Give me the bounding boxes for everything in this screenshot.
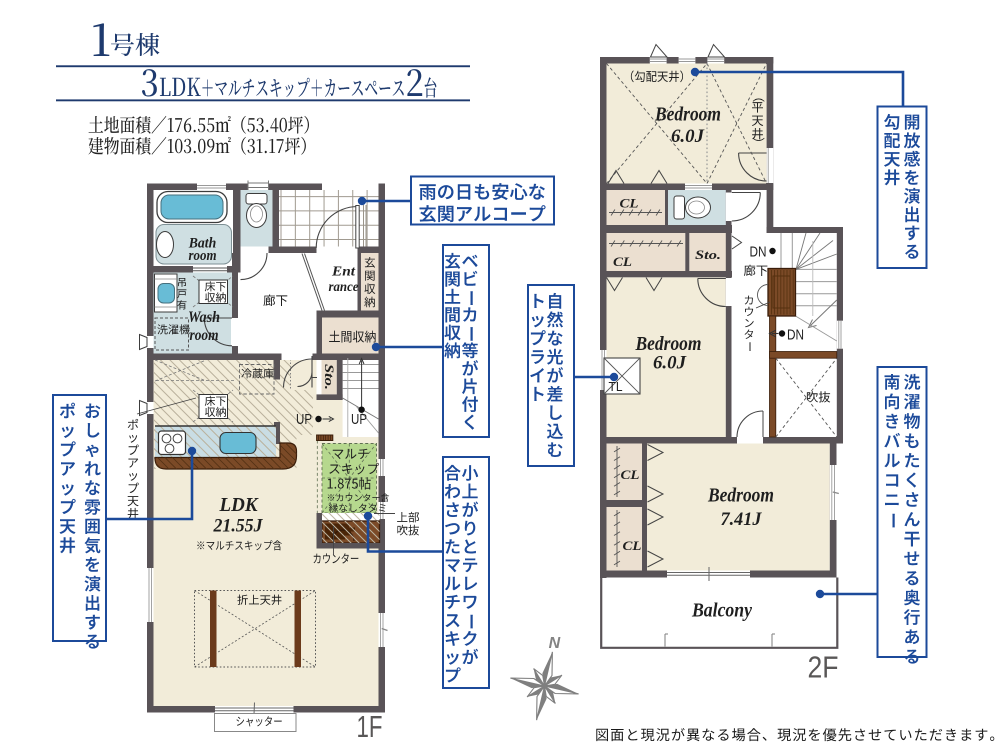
svg-text:CL: CL [621, 467, 640, 482]
svg-text:Sto.: Sto. [695, 247, 721, 262]
svg-text:LDK: LDK [219, 494, 260, 516]
svg-text:Ent: Ent [331, 265, 356, 280]
svg-text:CL: CL [623, 538, 642, 553]
svg-text:room: room [189, 248, 217, 264]
svg-text:21.55J: 21.55J [213, 516, 263, 537]
svg-text:DN: DN [787, 328, 804, 344]
svg-text:CL: CL [613, 254, 632, 269]
svg-text:CL: CL [620, 196, 639, 211]
svg-text:7.41J: 7.41J [721, 509, 762, 530]
svg-text:DN: DN [750, 245, 767, 261]
svg-text:Sto.: Sto. [322, 364, 336, 390]
svg-text:room: room [190, 327, 219, 344]
svg-text:1F: 1F [357, 709, 383, 744]
svg-text:UP: UP [296, 411, 312, 428]
svg-text:2F: 2F [808, 650, 839, 685]
svg-text:6.0J: 6.0J [653, 353, 686, 374]
svg-text:Bedroom: Bedroom [654, 104, 721, 126]
svg-text:Wash: Wash [188, 309, 220, 326]
svg-text:rance: rance [329, 280, 359, 295]
svg-text:Balcony: Balcony [691, 600, 752, 622]
svg-text:TL: TL [609, 379, 623, 394]
svg-text:6.0J: 6.0J [671, 126, 704, 147]
svg-text:UP: UP [351, 411, 367, 428]
svg-text:N: N [549, 635, 561, 652]
svg-text:Bedroom: Bedroom [707, 485, 774, 507]
